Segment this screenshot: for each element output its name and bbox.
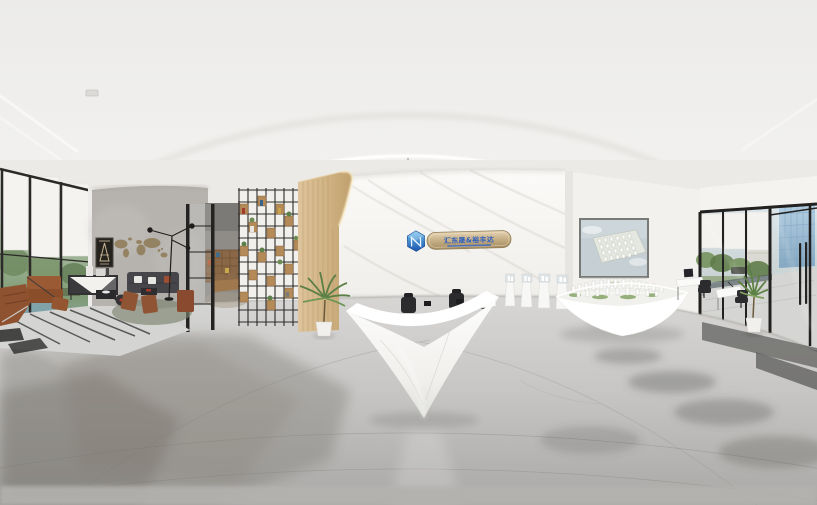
roller-blind	[31, 177, 59, 257]
black-side-table	[141, 288, 157, 295]
plant-pot	[746, 318, 762, 332]
aerial-masterplan-artwork	[580, 219, 648, 278]
monitor-small	[424, 301, 431, 306]
roller-blind	[3, 172, 28, 250]
door-handle	[805, 242, 807, 304]
red-book	[146, 289, 151, 292]
nadir-blur-band	[0, 486, 817, 505]
partition-glass	[190, 204, 212, 332]
decor-vase	[86, 266, 93, 276]
leather-armchair	[177, 290, 194, 312]
desk-monitor	[684, 269, 694, 278]
pedestal	[505, 274, 515, 306]
pedestal	[521, 274, 532, 307]
monitor-small	[456, 299, 463, 304]
ceiling-vent	[86, 90, 98, 96]
cushion-white	[134, 276, 142, 283]
door-handle	[799, 243, 801, 305]
cushion-white	[148, 277, 156, 284]
plant-trunk	[324, 300, 325, 322]
roller-blind	[62, 184, 89, 256]
roller-blind	[725, 213, 746, 249]
decor-box	[96, 269, 105, 276]
pedestal	[538, 274, 550, 308]
plant-pot	[316, 322, 332, 336]
leather-armchair	[141, 294, 158, 314]
company-name-text: 汇东晟&裕丰达	[444, 235, 494, 245]
decor-vase-dark	[106, 268, 109, 276]
panorama-canvas: 汇东晟&裕丰达	[0, 0, 817, 505]
coffee-table	[96, 290, 116, 299]
partition-frame	[211, 204, 215, 330]
tower-poster	[96, 238, 113, 267]
roller-blind	[748, 212, 769, 250]
